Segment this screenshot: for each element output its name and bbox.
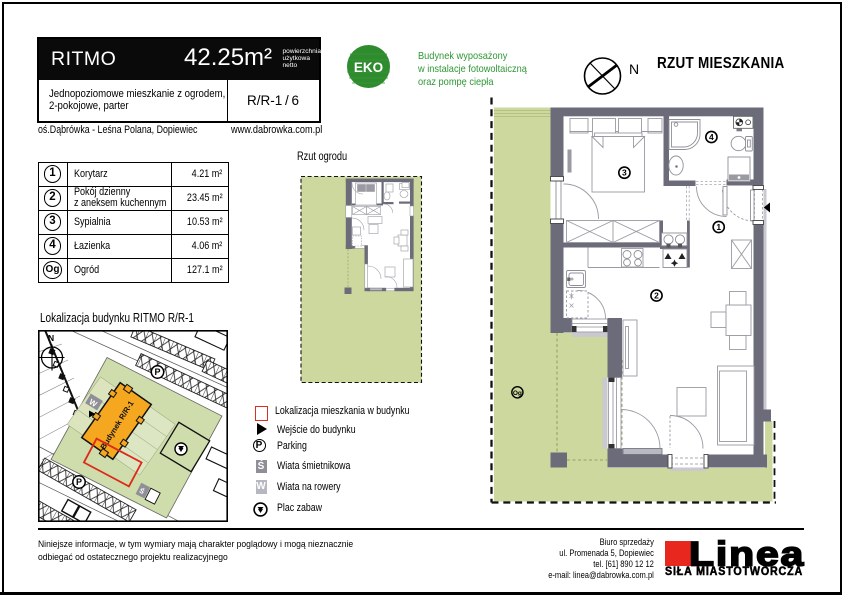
- svg-text:N: N: [48, 333, 54, 343]
- svg-text:N: N: [629, 61, 639, 77]
- svg-text:4: 4: [709, 132, 714, 142]
- svg-text:EKO: EKO: [354, 60, 383, 75]
- svg-text:2: 2: [654, 291, 659, 301]
- svg-text:P: P: [154, 367, 160, 377]
- svg-text:Og: Og: [513, 390, 522, 397]
- svg-text:P: P: [76, 477, 82, 487]
- svg-text:3: 3: [622, 168, 627, 178]
- svg-text:1: 1: [716, 222, 721, 232]
